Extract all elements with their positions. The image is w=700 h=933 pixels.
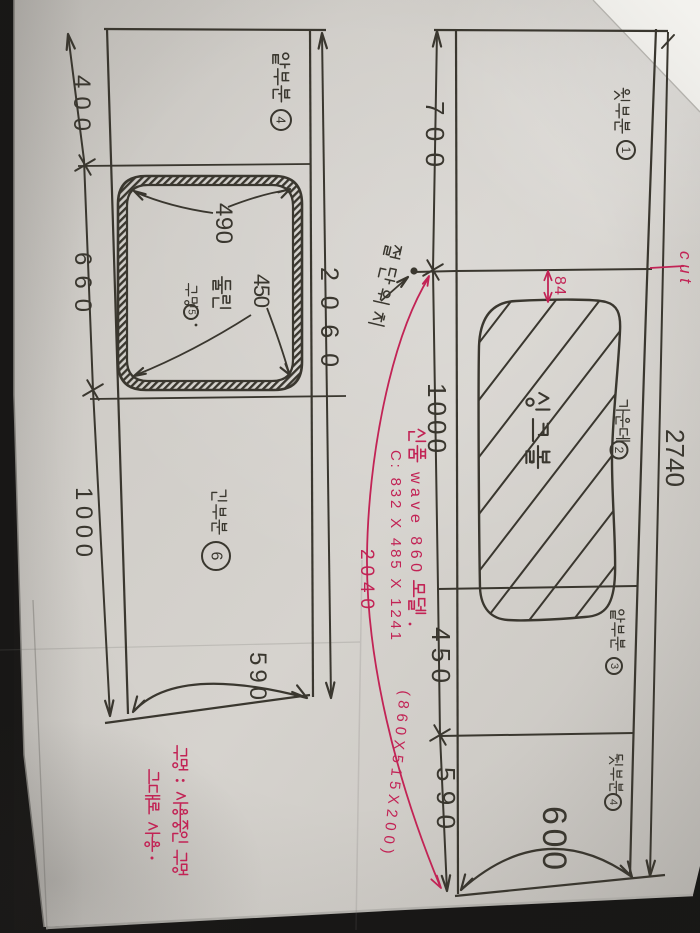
svg-text:590: 590 bbox=[244, 652, 271, 700]
svg-text:4: 4 bbox=[274, 116, 289, 123]
svg-text:660: 660 bbox=[69, 252, 96, 312]
svg-text:5: 5 bbox=[186, 309, 197, 315]
svg-text:6: 6 bbox=[208, 552, 225, 561]
svg-text:2: 2 bbox=[612, 447, 626, 454]
svg-text:450: 450 bbox=[249, 274, 274, 308]
svg-text:490: 490 bbox=[210, 203, 237, 244]
svg-text:1: 1 bbox=[619, 147, 633, 154]
svg-text:700: 700 bbox=[420, 101, 450, 167]
svg-text:600: 600 bbox=[535, 806, 573, 870]
svg-text:3: 3 bbox=[608, 663, 620, 669]
svg-text:400: 400 bbox=[68, 75, 95, 131]
svg-text:2740: 2740 bbox=[660, 429, 690, 487]
svg-text:cut: cut bbox=[676, 251, 695, 284]
svg-text:590: 590 bbox=[431, 767, 461, 829]
svg-text:84: 84 bbox=[551, 276, 568, 295]
svg-text:C: 832 X 485 X 1241: C: 832 X 485 X 1241 bbox=[387, 450, 404, 640]
svg-text:450: 450 bbox=[426, 627, 456, 683]
svg-text:4: 4 bbox=[607, 799, 619, 805]
